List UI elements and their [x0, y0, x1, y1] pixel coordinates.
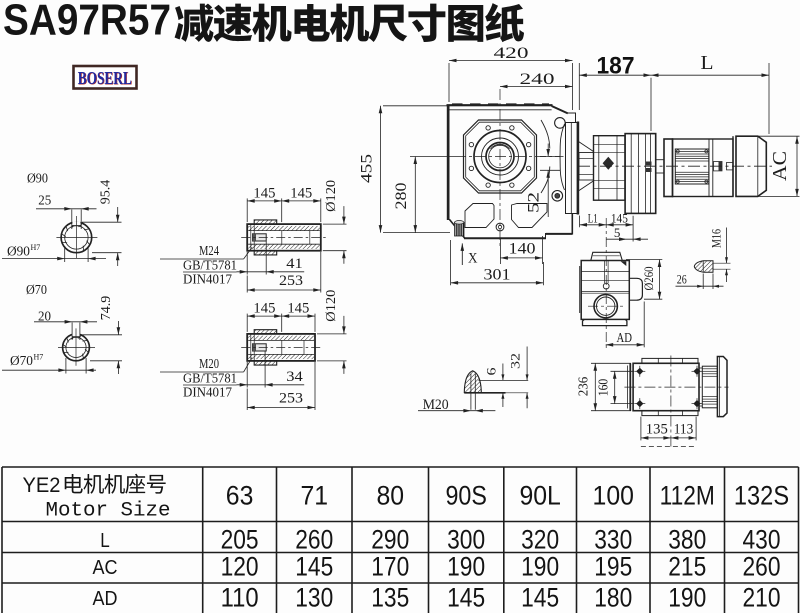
- svg-text:Ø70: Ø70: [10, 354, 33, 369]
- svg-text:253: 253: [279, 273, 303, 289]
- svg-text:145: 145: [287, 301, 309, 317]
- svg-text:170: 170: [371, 552, 409, 582]
- svg-text:SA97R57: SA97R57: [3, 0, 171, 45]
- svg-text:26: 26: [677, 273, 687, 287]
- svg-text:190: 190: [668, 582, 706, 612]
- svg-text:AD: AD: [93, 587, 118, 610]
- svg-text:Ø70: Ø70: [26, 283, 47, 298]
- svg-text:M24: M24: [199, 243, 219, 258]
- svg-text:AC: AC: [93, 556, 118, 579]
- svg-text:90L: 90L: [519, 481, 560, 511]
- svg-text:74.9: 74.9: [99, 296, 114, 321]
- svg-text:195: 195: [594, 552, 632, 582]
- svg-text:132S: 132S: [734, 481, 789, 511]
- svg-text:AD: AD: [617, 330, 633, 345]
- svg-text:120: 120: [221, 552, 259, 582]
- svg-text:71: 71: [300, 481, 328, 511]
- svg-text:GB/T5781: GB/T5781: [183, 258, 237, 273]
- svg-text:41: 41: [286, 256, 303, 272]
- svg-text:112M: 112M: [660, 481, 715, 511]
- svg-text:135: 135: [646, 422, 668, 438]
- svg-text:H7: H7: [34, 353, 44, 362]
- svg-text:205: 205: [221, 524, 259, 554]
- svg-text:80: 80: [376, 481, 404, 511]
- svg-text:145: 145: [253, 301, 275, 317]
- svg-text:H7: H7: [31, 243, 41, 252]
- svg-text:160: 160: [596, 379, 611, 397]
- svg-text:32: 32: [508, 353, 522, 369]
- svg-text:300: 300: [447, 524, 485, 554]
- svg-text:260: 260: [295, 524, 333, 554]
- svg-text:95.4: 95.4: [99, 180, 114, 205]
- svg-text:190: 190: [447, 552, 485, 582]
- svg-text:113: 113: [674, 422, 694, 438]
- svg-text:420: 420: [494, 45, 529, 62]
- svg-text:YE2: YE2: [23, 474, 61, 497]
- svg-text:455: 455: [359, 154, 376, 183]
- svg-text:Ø260: Ø260: [642, 267, 656, 291]
- svg-text:145: 145: [295, 552, 333, 582]
- svg-text:6: 6: [485, 368, 499, 376]
- svg-text:260: 260: [743, 552, 781, 582]
- svg-text:20: 20: [38, 310, 51, 325]
- svg-text:L1: L1: [588, 211, 598, 225]
- svg-text:Ø90: Ø90: [27, 172, 48, 187]
- svg-text:AC: AC: [770, 151, 791, 181]
- svg-text:145: 145: [290, 186, 312, 202]
- svg-text:240: 240: [520, 71, 555, 88]
- svg-text:DIN4017: DIN4017: [183, 385, 232, 400]
- svg-text:25: 25: [38, 193, 51, 208]
- svg-text:X: X: [468, 251, 478, 267]
- svg-text:145: 145: [521, 582, 559, 612]
- svg-text:34: 34: [286, 369, 303, 385]
- svg-text:280: 280: [393, 182, 410, 209]
- svg-text:140: 140: [509, 241, 536, 258]
- svg-text:Ø120: Ø120: [324, 180, 339, 212]
- svg-text:180: 180: [594, 582, 632, 612]
- svg-text:236: 236: [575, 377, 590, 397]
- svg-text:DIN4017: DIN4017: [183, 272, 232, 287]
- svg-text:330: 330: [594, 524, 632, 554]
- svg-text:BOSERL: BOSERL: [78, 68, 132, 88]
- svg-text:Ø120: Ø120: [324, 290, 339, 322]
- svg-text:215: 215: [668, 552, 706, 582]
- svg-text:M20: M20: [199, 356, 219, 371]
- svg-text:110: 110: [221, 582, 259, 612]
- svg-text:145: 145: [447, 582, 485, 612]
- svg-text:90S: 90S: [445, 481, 486, 511]
- svg-text:290: 290: [371, 524, 409, 554]
- svg-text:253: 253: [279, 391, 303, 407]
- svg-text:301: 301: [484, 267, 511, 284]
- svg-text:100: 100: [593, 481, 634, 511]
- svg-text:63: 63: [226, 481, 254, 511]
- svg-text:L: L: [100, 529, 110, 552]
- svg-text:L: L: [701, 52, 714, 74]
- svg-text:380: 380: [668, 524, 706, 554]
- svg-text:GB/T5781: GB/T5781: [183, 371, 237, 386]
- svg-text:M16: M16: [709, 229, 723, 248]
- svg-text:190: 190: [521, 552, 559, 582]
- svg-text:52: 52: [525, 192, 542, 213]
- svg-text:210: 210: [743, 582, 781, 612]
- svg-text:Ø90: Ø90: [7, 244, 30, 259]
- svg-text:145: 145: [253, 186, 275, 202]
- svg-text:135: 135: [371, 582, 409, 612]
- svg-text:130: 130: [295, 582, 333, 612]
- svg-text:430: 430: [743, 524, 781, 554]
- svg-text:320: 320: [521, 524, 559, 554]
- svg-text:Motor Size: Motor Size: [46, 500, 171, 523]
